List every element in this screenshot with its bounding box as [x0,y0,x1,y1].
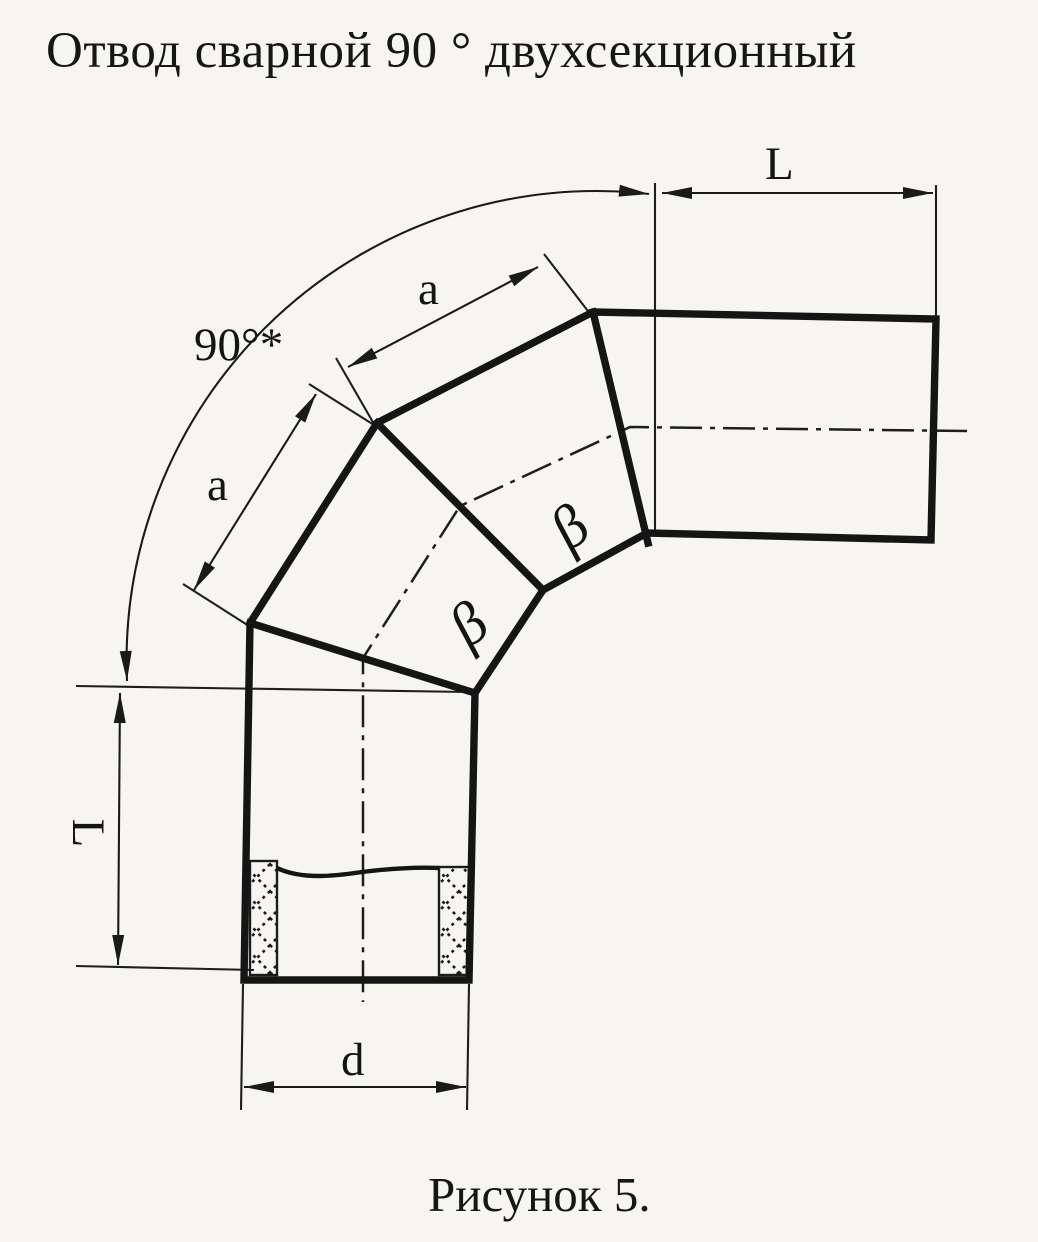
figure-caption: Рисунок 5. [428,1166,651,1223]
elbow-body-outline [244,312,936,980]
elbow-technical-drawing: 90°* L L a a d β β [0,0,1038,1242]
socket-cross-section [250,861,469,975]
reference-line-left-bottom [76,966,254,970]
scanned-page: Отвод сварной 90 ° двухсекционный [0,0,1038,1242]
extension-line-d-right [467,984,469,1110]
hatched-wall-right [439,867,469,975]
dim-label-a-lower: a [207,459,228,511]
extension-line-d-left [241,984,243,1110]
weld-seam-2 [377,423,543,590]
elbow-outline [244,312,936,980]
miter-angle-label-lower: β [436,589,501,660]
extension-line-a-upper-right [544,254,591,315]
hatched-wall-left [250,861,277,975]
extension-line-a-lower-bottom [183,584,249,626]
reference-line-left-top [76,686,468,692]
extension-line-a-lower-top [309,384,374,425]
dim-label-d: d [341,1034,365,1086]
break-line-wavy [277,868,439,876]
dim-label-a-upper: a [418,263,439,315]
dim-label-L-left: L [62,819,114,848]
dim-label-L-top: L [765,138,794,190]
angle-label: 90°* [194,319,283,371]
miter-angle-label-upper: β [537,492,602,563]
dimension-line-L-left [118,693,120,965]
